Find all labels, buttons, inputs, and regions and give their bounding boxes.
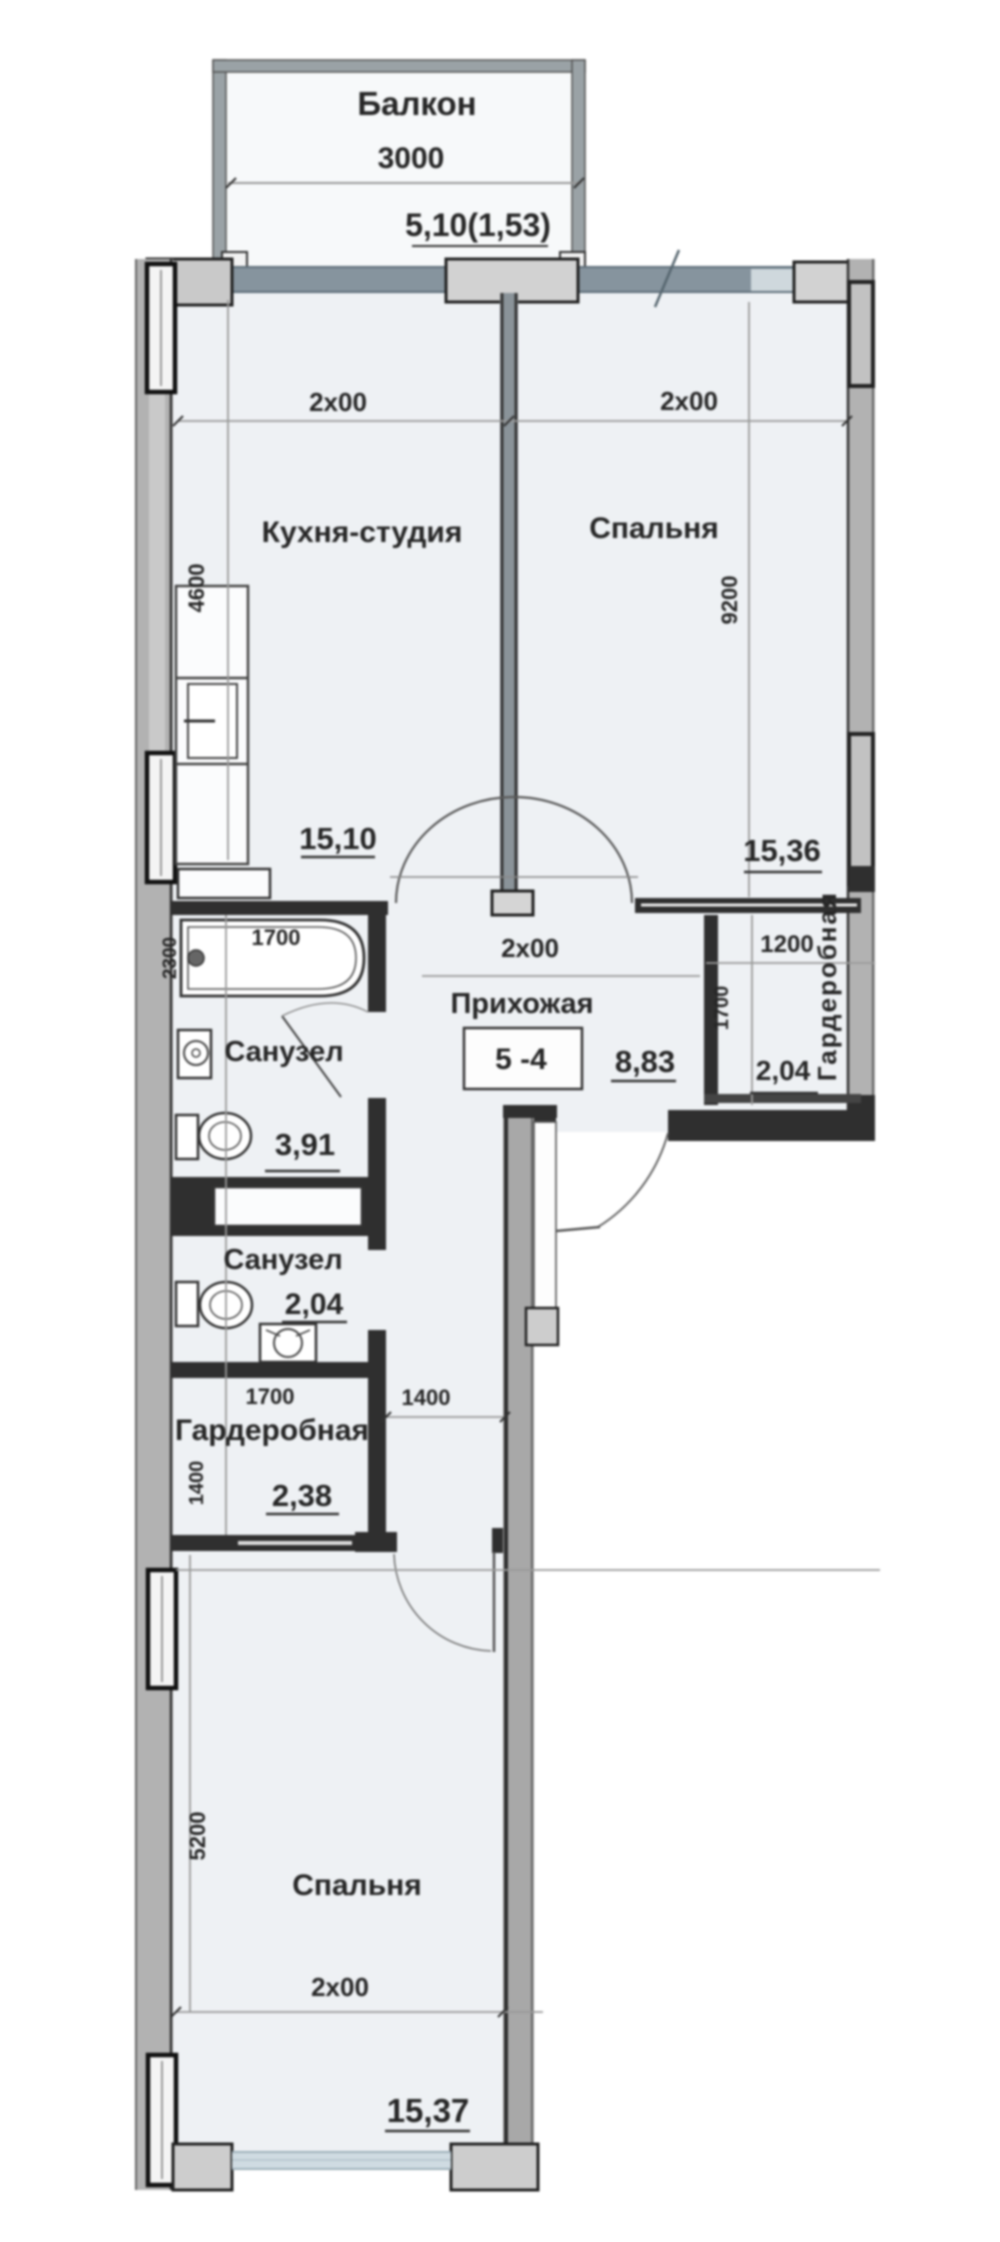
svg-text:2x00: 2x00	[311, 1972, 369, 2002]
svg-text:4600: 4600	[184, 564, 209, 613]
svg-text:1700: 1700	[252, 925, 301, 950]
svg-text:15,36: 15,36	[743, 833, 821, 868]
svg-text:2x00: 2x00	[660, 386, 718, 416]
svg-text:Прихожая: Прихожая	[450, 988, 593, 1020]
svg-text:1400: 1400	[186, 1461, 208, 1506]
svg-text:3,91: 3,91	[275, 1127, 335, 1162]
svg-text:1400: 1400	[402, 1385, 451, 1410]
svg-text:Спальня: Спальня	[292, 1869, 422, 1902]
svg-text:8,83: 8,83	[615, 1044, 675, 1079]
svg-text:Балкон: Балкон	[357, 85, 476, 122]
svg-text:1200: 1200	[760, 931, 813, 958]
svg-text:1700: 1700	[246, 1384, 295, 1409]
svg-text:1700: 1700	[711, 986, 733, 1031]
svg-text:15,37: 15,37	[387, 2092, 470, 2129]
svg-text:15,10: 15,10	[299, 821, 377, 856]
svg-text:Кухня-студия: Кухня-студия	[262, 516, 463, 549]
svg-text:3000: 3000	[378, 142, 445, 175]
svg-text:2,38: 2,38	[272, 1478, 332, 1513]
svg-text:5 -4: 5 -4	[495, 1043, 547, 1076]
svg-text:Спальня: Спальня	[589, 512, 719, 545]
svg-text:2300: 2300	[160, 937, 181, 979]
svg-text:Гардеробная: Гардеробная	[812, 891, 842, 1081]
svg-text:2,04: 2,04	[285, 1288, 344, 1321]
svg-text:5,10(1,53): 5,10(1,53)	[405, 207, 551, 243]
svg-text:2,04: 2,04	[756, 1055, 811, 1086]
svg-text:9200: 9200	[717, 576, 742, 625]
svg-text:Санузел: Санузел	[223, 1244, 342, 1276]
svg-text:Гардеробная: Гардеробная	[175, 1414, 369, 1447]
svg-text:Санузел: Санузел	[224, 1036, 343, 1068]
svg-text:5200: 5200	[185, 1812, 210, 1861]
svg-text:2x00: 2x00	[309, 387, 367, 417]
svg-text:2x00: 2x00	[501, 933, 559, 963]
